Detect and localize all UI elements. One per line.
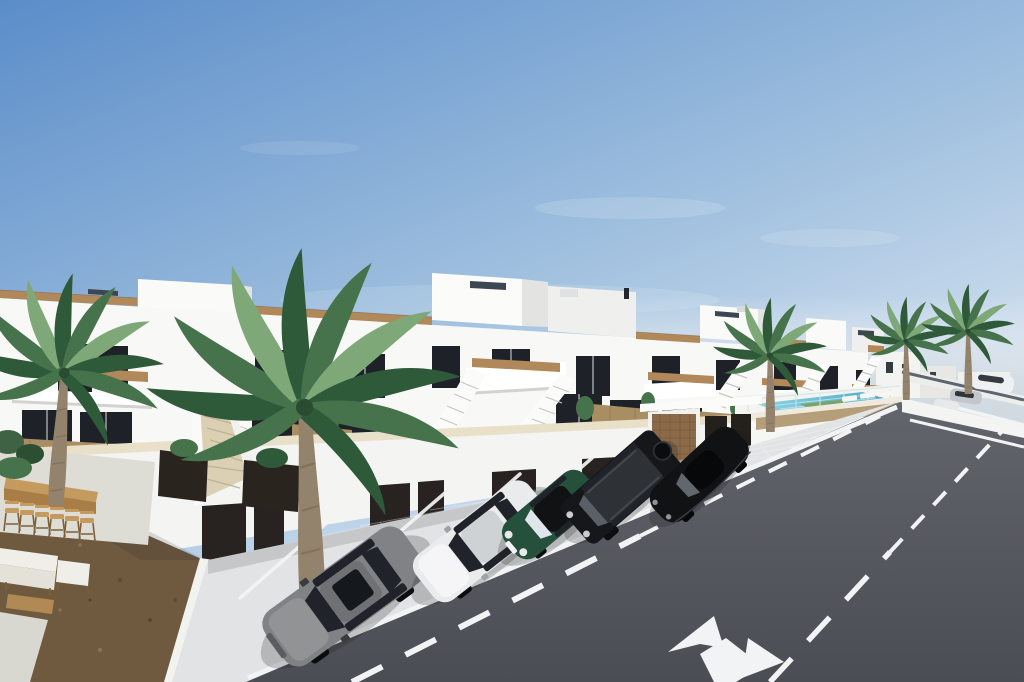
architectural-render-svg [0,0,1024,682]
render-canvas [0,0,1024,682]
